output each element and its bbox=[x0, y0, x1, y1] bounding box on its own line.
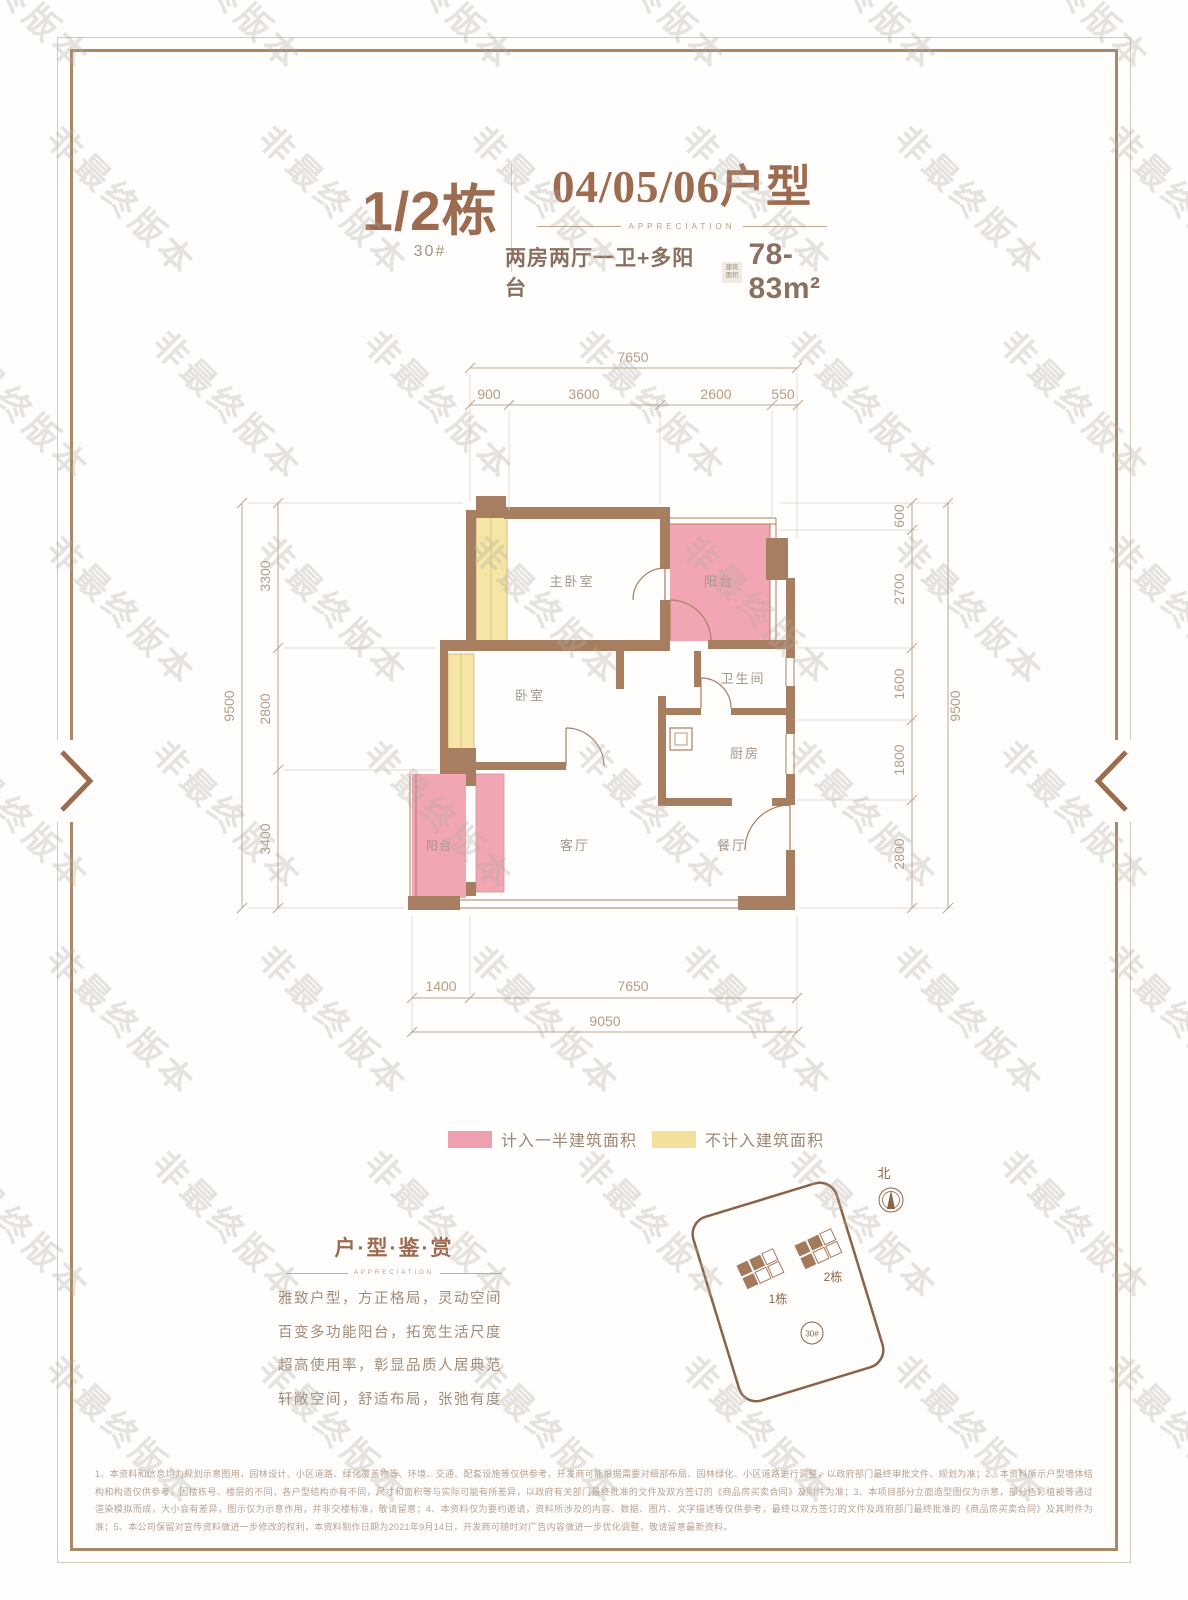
dim-right-seg-3: 1800 bbox=[891, 744, 907, 775]
dim-right-overall: 9500 bbox=[947, 690, 963, 721]
dimension-lines bbox=[237, 363, 953, 1037]
unit-type-title: 04/05/06户型 bbox=[532, 150, 832, 215]
dim-right-seg-4: 2800 bbox=[891, 838, 907, 869]
dim-right-seg-1: 2700 bbox=[891, 573, 907, 604]
appreciation-subtitle-rule: APPRECIATION bbox=[278, 1270, 510, 1276]
area-value: 78-83m² bbox=[748, 238, 865, 306]
kitchen-counter bbox=[670, 728, 692, 750]
appreciation-word: APPRECIATION bbox=[629, 222, 736, 231]
layout-description: 两房两厅一卫+多阳台 bbox=[505, 242, 716, 302]
dim-right-seg-2: 1600 bbox=[891, 668, 907, 699]
appreciation-block: 户·型·鉴·赏 APPRECIATION 雅致户型，方正格局，灵动空间 百变多功… bbox=[278, 1232, 510, 1426]
room-label-balcony-top: 阳台 bbox=[704, 574, 734, 589]
next-chevron-icon[interactable] bbox=[54, 748, 98, 814]
dim-left-seg-1: 2800 bbox=[257, 693, 273, 724]
dimension-labels: 7650 900 3600 2600 550 9500 3300 2800 34… bbox=[221, 349, 963, 1029]
site-plan: 北 1栋 2栋 30# bbox=[660, 1148, 960, 1413]
room-label-dining: 餐厅 bbox=[717, 838, 747, 853]
dim-left-overall: 9500 bbox=[221, 690, 237, 721]
circle-label: 30# bbox=[805, 1330, 819, 1339]
dim-top-seg-0: 900 bbox=[477, 386, 501, 402]
room-label-kitchen: 厨房 bbox=[730, 746, 760, 761]
dim-top-seg-2: 2600 bbox=[700, 386, 731, 402]
flyer-page: 1/2栋 30# 04/05/06户型 APPRECIATION 两房两厅一卫+… bbox=[0, 0, 1188, 1600]
room-label-balcony-bottom: 阳台 bbox=[426, 838, 452, 853]
legend-half-area: 计入一半建筑面积 bbox=[448, 1127, 637, 1151]
appreciation-line: 轩敞空间，舒适布局，张弛有度 bbox=[278, 1393, 510, 1408]
dim-bottom-overall: 9050 bbox=[589, 1013, 620, 1029]
area-badge-bottom: 面积 bbox=[726, 272, 739, 279]
layout-summary-row: 两房两厅一卫+多阳台 建筑 面积 78-83m² bbox=[505, 238, 865, 306]
building-cluster-1 bbox=[736, 1249, 783, 1289]
room-label-living: 客厅 bbox=[560, 838, 590, 853]
dim-left-seg-2: 3400 bbox=[257, 823, 273, 854]
legend-excluded-swatch bbox=[652, 1131, 696, 1148]
dim-bottom-seg-1: 7650 bbox=[617, 978, 648, 994]
floor-plan: 主卧室 阳台 卫生间 厨房 卧室 客厅 餐厅 阳台 bbox=[220, 338, 972, 1051]
building-title: 1/2栋 bbox=[330, 166, 530, 246]
building2-label: 2栋 bbox=[824, 1269, 843, 1284]
disclaimer-text: 1、本资料和信息均为规划示意图用，园林设计、小区道路、绿化覆盖物等、环境、交通、… bbox=[95, 1466, 1093, 1536]
appreciation-line: 百变多功能阳台，拓宽生活尺度 bbox=[278, 1326, 510, 1341]
dim-top-seg-1: 3600 bbox=[568, 386, 599, 402]
north-compass: 北 bbox=[877, 1166, 903, 1212]
dim-left-seg-0: 3300 bbox=[257, 560, 273, 591]
prev-chevron-icon[interactable] bbox=[1090, 748, 1134, 814]
appreciation-line: 雅致户型，方正格局，灵动空间 bbox=[278, 1292, 510, 1307]
room-label-master: 主卧室 bbox=[549, 574, 594, 589]
dim-bottom-seg-0: 1400 bbox=[425, 978, 456, 994]
appreciation-subtitle: APPRECIATION bbox=[354, 1270, 434, 1276]
building-number-circle: 30# bbox=[801, 1322, 823, 1344]
room-label-bedroom: 卧室 bbox=[515, 688, 545, 703]
north-label: 北 bbox=[877, 1166, 890, 1181]
dim-right-seg-0: 600 bbox=[891, 504, 907, 528]
area-badge-top: 建筑 bbox=[726, 264, 739, 271]
room-label-bath: 卫生间 bbox=[720, 671, 765, 686]
building1-label: 1栋 bbox=[769, 1291, 788, 1306]
appreciation-title: 户·型·鉴·赏 bbox=[278, 1232, 510, 1262]
witness-lines bbox=[248, 374, 954, 1034]
site-boundary bbox=[688, 1178, 888, 1405]
appreciation-rule: APPRECIATION bbox=[532, 222, 832, 231]
area-badge: 建筑 面积 bbox=[722, 262, 743, 283]
dim-top-seg-3: 550 bbox=[771, 386, 795, 402]
building-number: 30# bbox=[330, 243, 530, 261]
legend-half-area-swatch bbox=[448, 1131, 492, 1148]
dim-top-overall: 7650 bbox=[617, 349, 648, 365]
building-cluster-2 bbox=[794, 1229, 841, 1269]
legend-half-area-label: 计入一半建筑面积 bbox=[501, 1127, 637, 1151]
appreciation-line: 超高使用率，彰显品质人居典范 bbox=[278, 1359, 510, 1374]
